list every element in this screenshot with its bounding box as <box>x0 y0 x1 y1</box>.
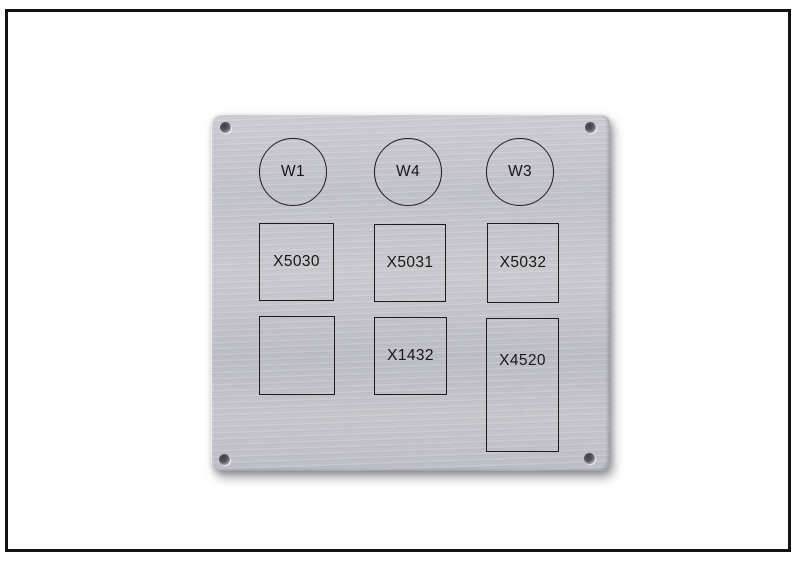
rect-label-x4520: X4520 <box>499 352 546 370</box>
image-frame: W1 W4 W3 X5030 X5031 X5032 X1432 <box>5 9 791 552</box>
screw-hole-top-right <box>585 122 596 133</box>
screw-hole-top-left <box>220 122 231 133</box>
square-label-x5030: X5030 <box>273 253 320 271</box>
connector-circle-w4: W4 <box>374 138 442 206</box>
screw-hole-bottom-right <box>584 453 595 464</box>
square-label-x5032: X5032 <box>500 254 547 272</box>
connector-square-x1432: X1432 <box>374 317 447 395</box>
connector-rect-x4520: X4520 <box>486 318 559 452</box>
connector-circle-w1: W1 <box>259 138 327 206</box>
connector-square-x5030: X5030 <box>259 223 334 301</box>
connector-circle-w3: W3 <box>486 138 554 206</box>
screw-hole-bottom-left <box>219 454 230 465</box>
circle-label-w4: W4 <box>396 163 420 181</box>
connector-square-x5031: X5031 <box>374 224 446 302</box>
connector-square-empty <box>259 316 335 395</box>
square-label-x1432: X1432 <box>387 347 434 365</box>
metal-panel: W1 W4 W3 X5030 X5031 X5032 X1432 <box>211 114 610 471</box>
connector-square-x5032: X5032 <box>487 223 559 303</box>
circle-label-w3: W3 <box>508 163 532 181</box>
square-label-x5031: X5031 <box>387 254 434 272</box>
photo-stage: W1 W4 W3 X5030 X5031 X5032 X1432 <box>0 0 800 565</box>
circle-label-w1: W1 <box>281 163 305 181</box>
